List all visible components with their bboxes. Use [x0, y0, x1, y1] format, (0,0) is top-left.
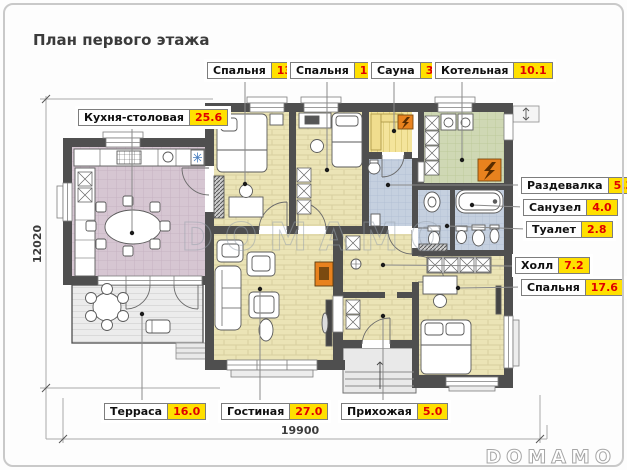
room-area: 2.8 — [581, 222, 612, 237]
room-label-living: Гостиная27.0 — [221, 403, 328, 420]
room-area: 16.0 — [167, 404, 205, 419]
room-name: Прихожая — [342, 404, 417, 419]
room-name: Кухня-столовая — [79, 110, 189, 125]
room-name: Терраса — [105, 404, 167, 419]
room-label-kitchen: Кухня-столовая25.6 — [78, 109, 228, 126]
toilet — [472, 225, 485, 246]
room-dot — [258, 287, 262, 291]
room-name: Сауна — [372, 63, 420, 78]
room-name: Спальня — [522, 280, 585, 295]
room-area: 17.6 — [585, 280, 623, 295]
room-dot — [130, 231, 134, 235]
chair — [434, 295, 447, 308]
sofa — [215, 266, 241, 330]
window — [57, 183, 72, 221]
room-area: 5.0 — [417, 404, 448, 419]
boiler-door-opening — [418, 162, 424, 182]
tv — [496, 286, 501, 314]
room-name: Санузел — [524, 200, 586, 215]
room-dot — [381, 314, 385, 318]
room-label-bedroom-3: Спальня17.6 — [521, 279, 624, 296]
bathtub — [456, 190, 503, 213]
kitchen-counter — [74, 149, 205, 166]
room-dot — [470, 203, 474, 207]
lounge-chair — [146, 320, 170, 333]
side-door-opening — [504, 114, 513, 140]
watermark: DOMAMO — [181, 215, 454, 259]
room-dot — [140, 312, 144, 316]
tv — [305, 116, 319, 124]
room-area: 10.1 — [513, 63, 551, 78]
room-dot — [386, 183, 390, 187]
nightstand — [270, 114, 283, 125]
window — [247, 97, 287, 112]
boiler-icon — [478, 159, 501, 181]
room-area: 4.0 — [586, 200, 617, 215]
room-name: Раздевалка — [522, 178, 608, 193]
room-name: Спальня — [208, 63, 271, 78]
room-label-entry: Прихожая5.0 — [341, 403, 448, 420]
room-dot — [325, 168, 329, 172]
room-label-toilet: Туалет2.8 — [526, 221, 613, 238]
page-title: План первого этажа — [33, 31, 209, 49]
room-label-boiler: Котельная10.1 — [435, 62, 553, 79]
chair — [240, 185, 253, 198]
window — [435, 97, 475, 112]
sink-icon — [163, 152, 173, 162]
shower-basin — [424, 192, 440, 212]
fridge-icon — [191, 150, 204, 165]
wardrobe — [297, 168, 311, 214]
room-label-dressing: Раздевалка5.3 — [521, 177, 627, 194]
window — [227, 360, 317, 377]
dimension-height-label: 12020 — [31, 225, 44, 264]
room-dot — [392, 129, 396, 133]
living-hall-opening — [333, 296, 343, 332]
room-dot — [381, 263, 385, 267]
room-area: 27.0 — [289, 404, 327, 419]
room-name: Холл — [516, 258, 558, 273]
room-dot — [445, 224, 449, 228]
washing-machine — [458, 114, 473, 130]
washing-machine — [441, 114, 456, 130]
armchair — [249, 292, 279, 318]
room-label-bathroom: Санузел4.0 — [523, 199, 618, 216]
brand-logo: DOMAMO — [485, 446, 616, 468]
stove-icon — [117, 151, 141, 164]
window — [301, 97, 341, 112]
floor-lamp — [351, 259, 361, 269]
chair — [311, 140, 324, 153]
coffee-table — [259, 319, 273, 341]
bed — [421, 320, 471, 374]
room-area: 5.3 — [608, 178, 627, 193]
radiator — [214, 176, 224, 218]
room-label-terrace: Терраса16.0 — [104, 403, 206, 420]
washbasin — [456, 226, 467, 244]
window — [446, 377, 498, 391]
terrace-steps — [176, 343, 206, 359]
room-name: Туалет — [527, 222, 581, 237]
window — [504, 316, 519, 368]
washbasin — [368, 160, 380, 174]
sauna-heater-icon — [398, 115, 413, 129]
room-label-hall: Холл7.2 — [515, 257, 590, 274]
room-name: Спальня — [291, 63, 354, 78]
room-area: 7.2 — [558, 258, 589, 273]
fireplace — [315, 262, 333, 286]
room-name: Котельная — [436, 63, 513, 78]
room-dot — [460, 158, 464, 162]
floor-plan-page: 12020 19900 DOMAMO DOMAMO — [0, 0, 627, 470]
room-dot — [243, 182, 247, 186]
glass-doors-terrace — [98, 276, 202, 285]
room-name: Гостиная — [222, 404, 289, 419]
room-area: 25.6 — [189, 110, 227, 125]
dimension-width-label: 19900 — [281, 424, 320, 437]
window — [103, 132, 143, 147]
room-dot — [456, 286, 460, 290]
bed — [332, 113, 362, 167]
